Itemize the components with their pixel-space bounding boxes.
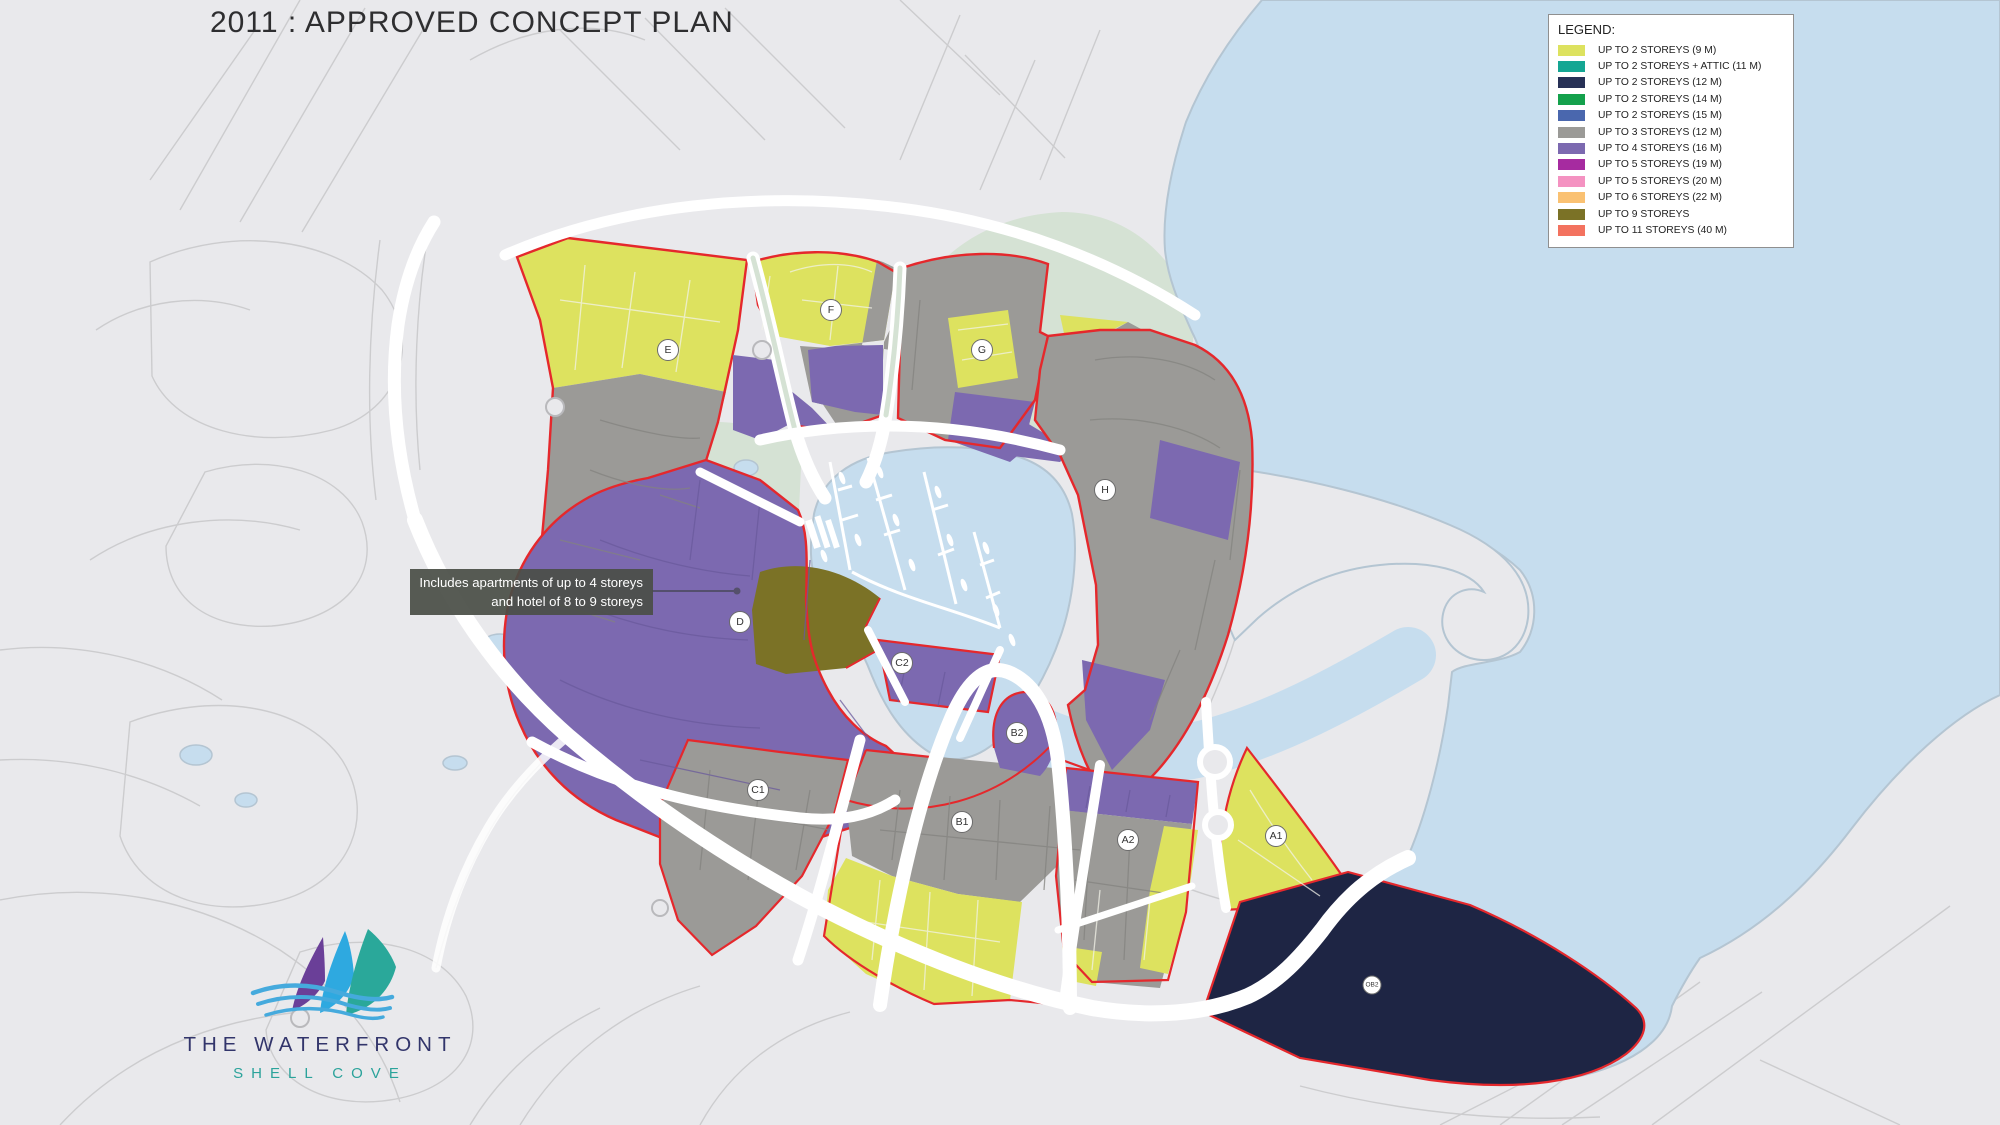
zone-label-A2: A2 bbox=[1118, 830, 1139, 851]
zone-label-F: F bbox=[821, 300, 842, 321]
legend-swatch bbox=[1558, 110, 1585, 121]
legend-item: UP TO 2 STOREYS (14 M) bbox=[1558, 91, 1785, 107]
zone-label-text: C2 bbox=[895, 657, 909, 669]
legend-item: UP TO 4 STOREYS (16 M) bbox=[1558, 140, 1785, 156]
logo-name: THE WATERFRONT bbox=[170, 1033, 470, 1057]
legend-item-label: UP TO 3 STOREYS (12 M) bbox=[1598, 127, 1722, 138]
legend-item: UP TO 5 STOREYS (19 M) bbox=[1558, 157, 1785, 173]
brand-logo: THE WATERFRONT SHELL COVE bbox=[170, 925, 470, 1100]
legend-item: UP TO 11 STOREYS (40 M) bbox=[1558, 222, 1785, 238]
legend-item-label: UP TO 4 STOREYS (16 M) bbox=[1598, 143, 1722, 154]
legend-item-label: UP TO 2 STOREYS (15 M) bbox=[1598, 110, 1722, 121]
road-loop-1 bbox=[1200, 747, 1230, 777]
zone-label-C2: C2 bbox=[892, 653, 913, 674]
legend-item-label: UP TO 11 STOREYS (40 M) bbox=[1598, 225, 1727, 236]
zone-label-C1: C1 bbox=[748, 780, 769, 801]
legend-item: UP TO 5 STOREYS (20 M) bbox=[1558, 173, 1785, 189]
legend-swatch bbox=[1558, 45, 1585, 56]
legend-item-label: UP TO 2 STOREYS (9 M) bbox=[1598, 45, 1716, 56]
zone-label-text: OB2 bbox=[1365, 982, 1378, 989]
zone-label-G: G bbox=[972, 340, 993, 361]
road-loop-2 bbox=[1205, 812, 1231, 838]
legend-swatch bbox=[1558, 77, 1585, 88]
legend-swatch bbox=[1558, 192, 1585, 203]
legend-swatch bbox=[1558, 127, 1585, 138]
zone-label-text: C1 bbox=[751, 784, 765, 796]
legend-rows: UP TO 2 STOREYS (9 M)UP TO 2 STOREYS + A… bbox=[1558, 42, 1785, 239]
legend-item-label: UP TO 6 STOREYS (22 M) bbox=[1598, 192, 1722, 203]
legend-title: LEGEND: bbox=[1558, 22, 1785, 37]
legend-swatch bbox=[1558, 143, 1585, 154]
roundabout-4 bbox=[652, 900, 668, 916]
legend-item-label: UP TO 9 STOREYS bbox=[1598, 209, 1689, 220]
zone-c1 bbox=[660, 740, 848, 955]
legend-item: UP TO 2 STOREYS (9 M) bbox=[1558, 42, 1785, 58]
legend-swatch bbox=[1558, 225, 1585, 236]
zone-label-text: A2 bbox=[1122, 834, 1135, 846]
zone-label-text: A1 bbox=[1270, 830, 1283, 842]
zone-label-B2: B2 bbox=[1007, 723, 1028, 744]
zone-label-A1: A1 bbox=[1266, 826, 1287, 847]
road-west-arterial bbox=[394, 222, 434, 520]
legend-item: UP TO 9 STOREYS bbox=[1558, 206, 1785, 222]
zone-c1-gray bbox=[660, 740, 848, 955]
zone-label-text: H bbox=[1101, 484, 1109, 496]
logo-sails-icon bbox=[170, 925, 470, 1030]
roundabout-2 bbox=[546, 398, 564, 416]
zone-label-text: D bbox=[736, 616, 744, 628]
concept-plan-page: EFGHDC2C1B2B1A2A1OB2 2011 : APPROVED CON… bbox=[0, 0, 2000, 1125]
legend-swatch bbox=[1558, 61, 1585, 72]
legend-swatch bbox=[1558, 209, 1585, 220]
legend-swatch bbox=[1558, 94, 1585, 105]
zone-label-text: G bbox=[978, 344, 986, 356]
legend-item-label: UP TO 2 STOREYS + ATTIC (11 M) bbox=[1598, 61, 1761, 72]
annotation-callout: Includes apartments of up to 4 storeys a… bbox=[410, 569, 653, 615]
zone-label-text: B2 bbox=[1011, 727, 1024, 739]
zone-label-OB2: OB2 bbox=[1363, 976, 1381, 994]
zone-label-B1: B1 bbox=[952, 812, 973, 833]
legend-item: UP TO 6 STOREYS (22 M) bbox=[1558, 190, 1785, 206]
legend: LEGEND: UP TO 2 STOREYS (9 M)UP TO 2 STO… bbox=[1548, 14, 1794, 248]
legend-swatch bbox=[1558, 176, 1585, 187]
legend-item: UP TO 2 STOREYS (12 M) bbox=[1558, 75, 1785, 91]
zone-label-text: B1 bbox=[956, 816, 969, 828]
logo-tagline: SHELL COVE bbox=[170, 1065, 470, 1082]
legend-item: UP TO 3 STOREYS (12 M) bbox=[1558, 124, 1785, 140]
zone-label-D: D bbox=[730, 612, 751, 633]
zone-label-H: H bbox=[1095, 480, 1116, 501]
zone-label-E: E bbox=[658, 340, 679, 361]
legend-item-label: UP TO 5 STOREYS (19 M) bbox=[1598, 159, 1722, 170]
zone-e-yellow bbox=[517, 238, 747, 392]
legend-item-label: UP TO 2 STOREYS (14 M) bbox=[1598, 94, 1722, 105]
legend-item: UP TO 2 STOREYS (15 M) bbox=[1558, 108, 1785, 124]
page-title: 2011 : APPROVED CONCEPT PLAN bbox=[210, 6, 734, 40]
zone-label-text: E bbox=[664, 344, 671, 356]
legend-item-label: UP TO 2 STOREYS (12 M) bbox=[1598, 77, 1722, 88]
zone-label-text: F bbox=[828, 304, 834, 316]
legend-swatch bbox=[1558, 159, 1585, 170]
annotation-line1: Includes apartments of up to 4 storeys bbox=[416, 573, 643, 592]
legend-item: UP TO 2 STOREYS + ATTIC (11 M) bbox=[1558, 58, 1785, 74]
annotation-line2: and hotel of 8 to 9 storeys bbox=[416, 592, 643, 611]
legend-item-label: UP TO 5 STOREYS (20 M) bbox=[1598, 176, 1722, 187]
roundabout-1 bbox=[753, 341, 771, 359]
